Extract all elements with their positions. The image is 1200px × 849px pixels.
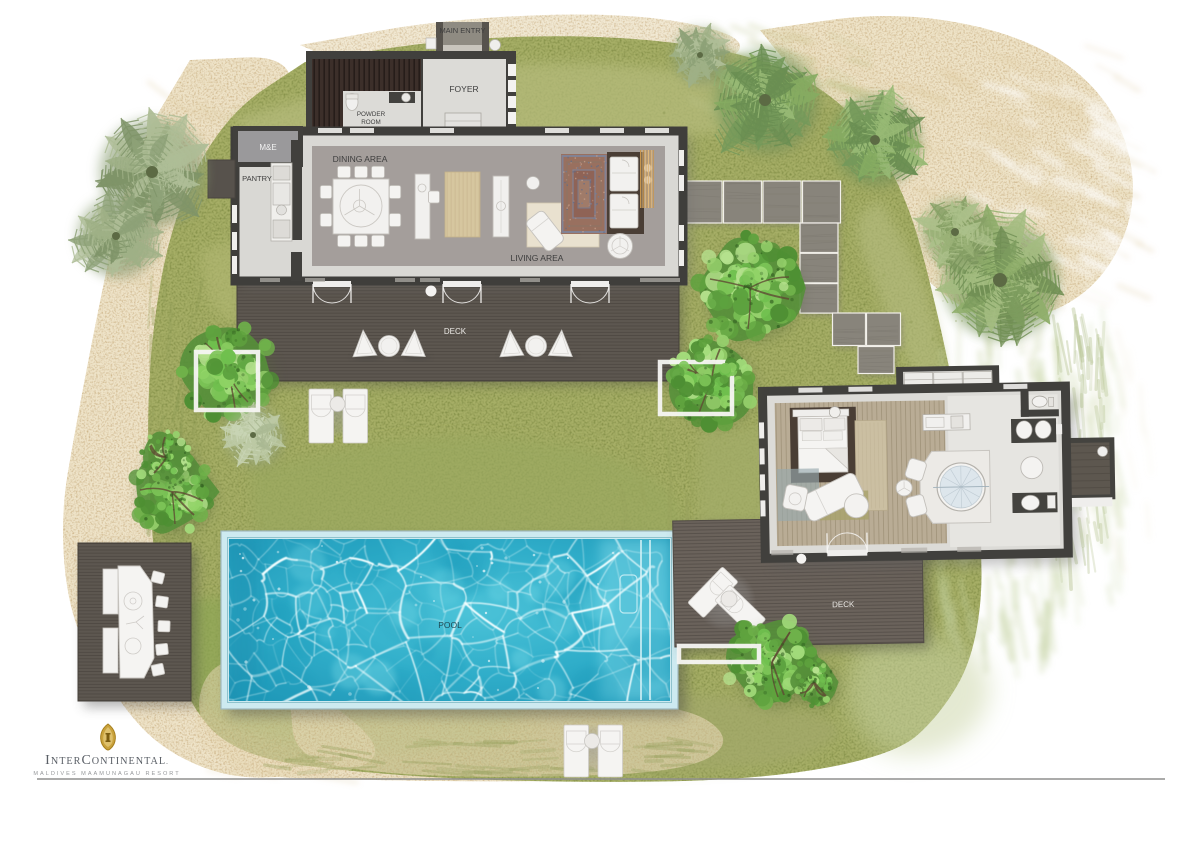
svg-text:POOL: POOL [438,620,462,630]
svg-text:DINING AREA: DINING AREA [333,154,388,164]
svg-text:LIVING AREA: LIVING AREA [511,253,564,263]
svg-text:ROOM: ROOM [361,119,381,126]
svg-text:DECK: DECK [444,327,467,336]
svg-text:DECK: DECK [832,600,855,609]
svg-text:PANTRY: PANTRY [242,174,272,183]
svg-text:FOYER: FOYER [449,84,478,94]
svg-text:POWDER: POWDER [357,111,386,118]
svg-text:INTERCONTINENTAL.: INTERCONTINENTAL. [45,753,169,768]
svg-text:MAIN ENTRY: MAIN ENTRY [439,26,485,35]
svg-text:MALDIVES MAAMUNAGAU RESORT: MALDIVES MAAMUNAGAU RESORT [33,771,180,777]
svg-text:M&E: M&E [259,143,276,152]
